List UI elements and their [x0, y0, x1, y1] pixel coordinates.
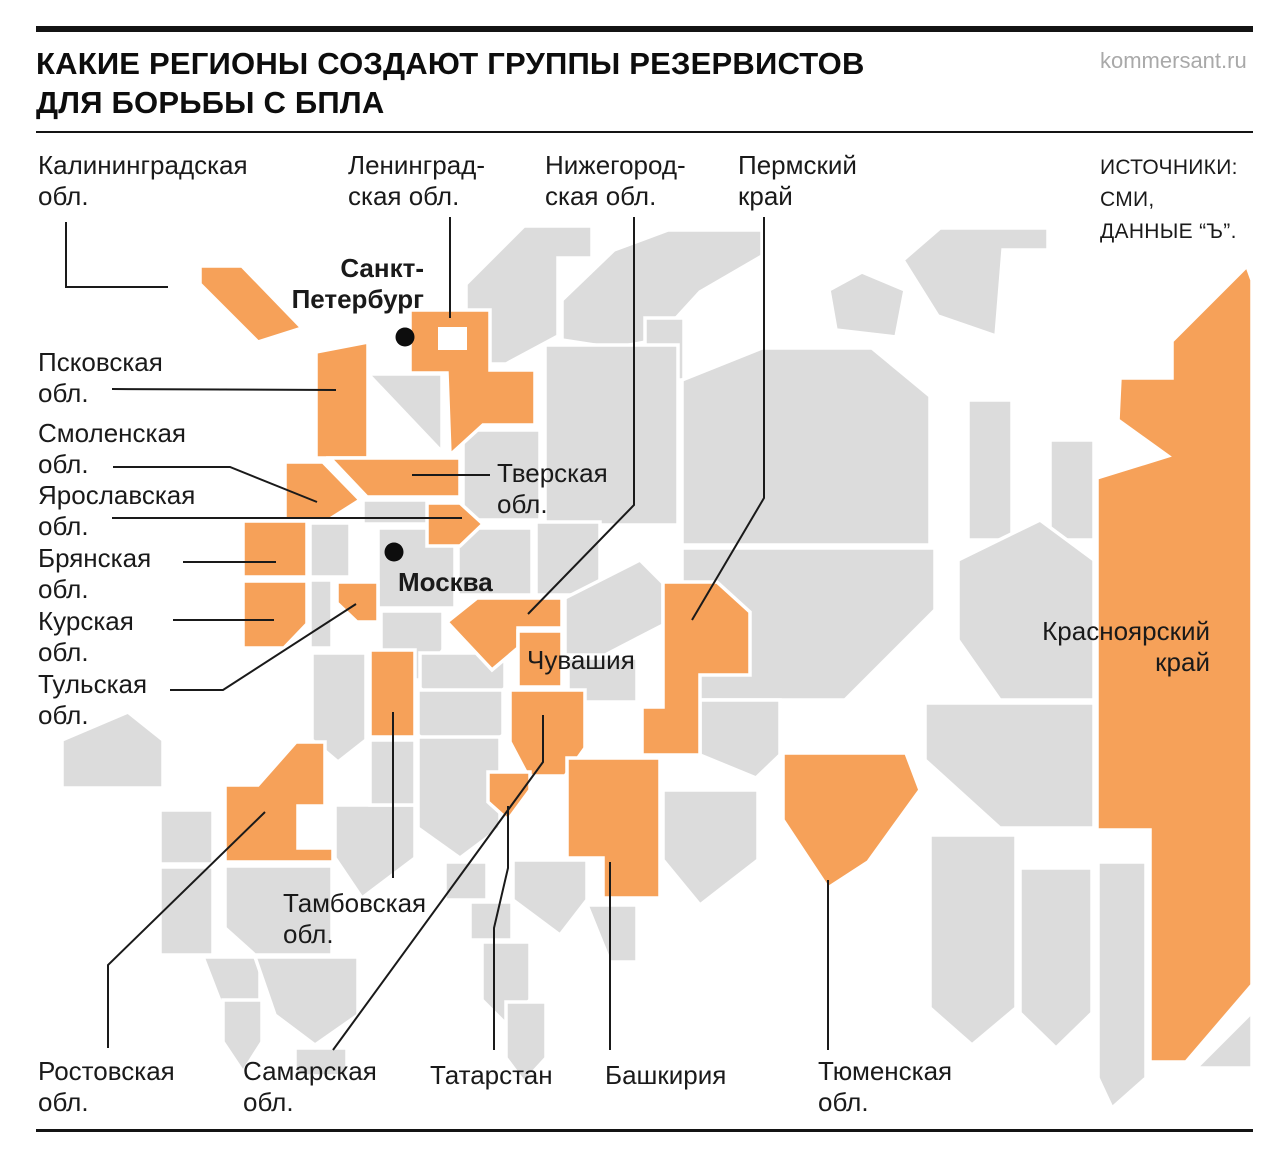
region-label-nizhegorod-line: ская обл. [545, 181, 686, 212]
kursk-region [243, 581, 307, 648]
map-region-neutral-32 [1020, 868, 1092, 1048]
map-region-neutral-26 [513, 860, 587, 935]
region-label-tambov: Тамбовскаяобл. [283, 888, 426, 950]
region-label-tyumen-line: Тюменская [818, 1056, 952, 1087]
map-region-neutral-46 [470, 902, 512, 940]
region-label-tula-line: обл. [38, 700, 147, 731]
region-label-kursk-line: обл. [38, 637, 134, 668]
map-region-neutral-5 [368, 374, 442, 452]
header-rule [36, 131, 1253, 133]
map-region-neutral-37 [160, 867, 213, 955]
kommersant-watermark: kommersant.ru [1100, 48, 1247, 74]
page-title: КАКИЕ РЕГИОНЫ СОЗДАЮТ ГРУППЫ РЕЗЕРВИСТОВ… [36, 44, 865, 122]
sources-note: ИСТОЧНИКИ: СМИ, ДАННЫЕ “Ъ”. [1100, 152, 1238, 248]
map-region-neutral-18 [310, 580, 332, 648]
region-label-bryansk-line: Брянская [38, 543, 151, 574]
region-label-yaroslavl-line: обл. [38, 511, 195, 542]
region-label-perm-line: Пермский [738, 150, 857, 181]
map-region-neutral-30 [925, 703, 1094, 828]
region-label-bashkiria-line: Башкирия [605, 1060, 726, 1091]
region-label-samara: Самарскаяобл. [243, 1056, 377, 1118]
top-rule [36, 26, 1253, 32]
region-label-bryansk-line: обл. [38, 574, 151, 605]
region-label-tula-line: Тульская [38, 669, 147, 700]
region-label-smolensk: Смоленскаяобл. [38, 418, 186, 480]
map-region-neutral-9 [968, 400, 1012, 540]
map-region-neutral-10 [1050, 440, 1094, 540]
map-water-cutout-0 [438, 327, 467, 350]
region-label-rostov: Ростовскаяобл. [38, 1056, 175, 1118]
region-label-krasnoyarsk-line: Красноярский [1042, 616, 1210, 647]
region-label-tatarstan: Татарстан [430, 1060, 553, 1091]
region-label-smolensk-line: обл. [38, 449, 186, 480]
map-region-neutral-41 [255, 957, 358, 1045]
region-label-krasnoyarsk-line: край [1042, 647, 1210, 678]
region-label-tver-line: обл. [497, 489, 608, 520]
region-label-chuvashia: Чувашия [527, 645, 635, 676]
region-label-perm-line: край [738, 181, 857, 212]
sources-line2: СМИ, [1100, 184, 1238, 216]
region-label-yaroslavl: Ярославскаяобл. [38, 480, 195, 542]
region-label-kursk-line: Курская [38, 606, 134, 637]
region-label-tatarstan-line: Татарстан [430, 1060, 553, 1091]
rostov-region [225, 742, 333, 862]
city-label-moscow: Москва [398, 567, 493, 598]
tula-region [337, 582, 378, 622]
region-label-leningrad-line: Ленинград- [348, 150, 485, 181]
city-label-saint-petersburg-line: Санкт- [292, 253, 424, 284]
region-label-kursk: Курскаяобл. [38, 606, 134, 668]
region-label-leningrad: Ленинград-ская обл. [348, 150, 485, 212]
region-label-pskov: Псковскаяобл. [38, 347, 163, 409]
region-label-smolensk-line: Смоленская [38, 418, 186, 449]
kaliningrad-region [200, 266, 302, 342]
region-label-kaliningrad-line: Калининградская [38, 150, 248, 181]
map-region-neutral-43 [335, 805, 415, 898]
region-label-krasnoyarsk: Красноярскийкрай [1042, 616, 1210, 678]
region-label-leningrad-line: ская обл. [348, 181, 485, 212]
map-region-neutral-17 [310, 523, 350, 577]
sources-line3: ДАННЫЕ “Ъ”. [1100, 216, 1238, 248]
map-region-neutral-29 [700, 700, 780, 778]
region-label-nizhegorod: Нижегород-ская обл. [545, 150, 686, 212]
city-label-saint-petersburg-line: Петербург [292, 284, 424, 315]
bryansk-region [243, 521, 307, 577]
map-region-neutral-8 [682, 348, 930, 545]
region-label-samara-line: Самарская [243, 1056, 377, 1087]
region-label-tambov-line: Тамбовская [283, 888, 426, 919]
page-title-line2: ДЛЯ БОРЬБЫ С БПЛА [36, 83, 865, 122]
region-label-bashkiria: Башкирия [605, 1060, 726, 1091]
region-label-kaliningrad-line: обл. [38, 181, 248, 212]
region-label-tver-line: Тверская [497, 458, 608, 489]
region-label-perm: Пермскийкрай [738, 150, 857, 212]
map-region-neutral-36 [160, 810, 213, 864]
region-label-tyumen-line: обл. [818, 1087, 952, 1118]
infographic-page: { "title": {"line1": "КАКИЕ РЕГИОНЫ СОЗД… [0, 0, 1280, 1168]
region-label-yaroslavl-line: Ярославская [38, 480, 195, 511]
city-label-saint-petersburg: Санкт-Петербург [292, 253, 424, 315]
region-label-rostov-line: Ростовская [38, 1056, 175, 1087]
bottom-rule [36, 1129, 1253, 1132]
city-label-moscow-line: Москва [398, 567, 493, 598]
page-title-line1: КАКИЕ РЕГИОНЫ СОЗДАЮТ ГРУППЫ РЕЗЕРВИСТОВ [36, 44, 865, 83]
region-label-pskov-line: обл. [38, 378, 163, 409]
region-label-rostov-line: обл. [38, 1087, 175, 1118]
region-label-chuvashia-line: Чувашия [527, 645, 635, 676]
region-label-tula: Тульскаяобл. [38, 669, 147, 731]
map-region-neutral-31 [930, 835, 1016, 1045]
tyumen-region [783, 753, 920, 888]
leader-line-kaliningrad [66, 222, 168, 287]
region-label-nizhegorod-line: Нижегород- [545, 150, 686, 181]
region-label-pskov-line: Псковская [38, 347, 163, 378]
region-label-samara-line: обл. [243, 1087, 377, 1118]
region-label-tambov-line: обл. [283, 919, 426, 950]
city-dot-moscow [385, 543, 404, 562]
map-region-neutral-2 [903, 228, 1048, 336]
city-dot-saint-petersburg [396, 328, 415, 347]
map-region-neutral-3 [829, 272, 905, 337]
region-label-tyumen: Тюменскаяобл. [818, 1056, 952, 1118]
region-label-bryansk: Брянскаяобл. [38, 543, 151, 605]
region-label-kaliningrad: Калининградскаяобл. [38, 150, 248, 212]
map-region-neutral-33 [1098, 862, 1146, 1108]
map-region-neutral-27 [587, 905, 637, 962]
map-region-neutral-28 [663, 790, 758, 905]
sources-line1: ИСТОЧНИКИ: [1100, 152, 1238, 184]
region-label-tver: Тверскаяобл. [497, 458, 608, 520]
pskov-region [316, 342, 368, 458]
